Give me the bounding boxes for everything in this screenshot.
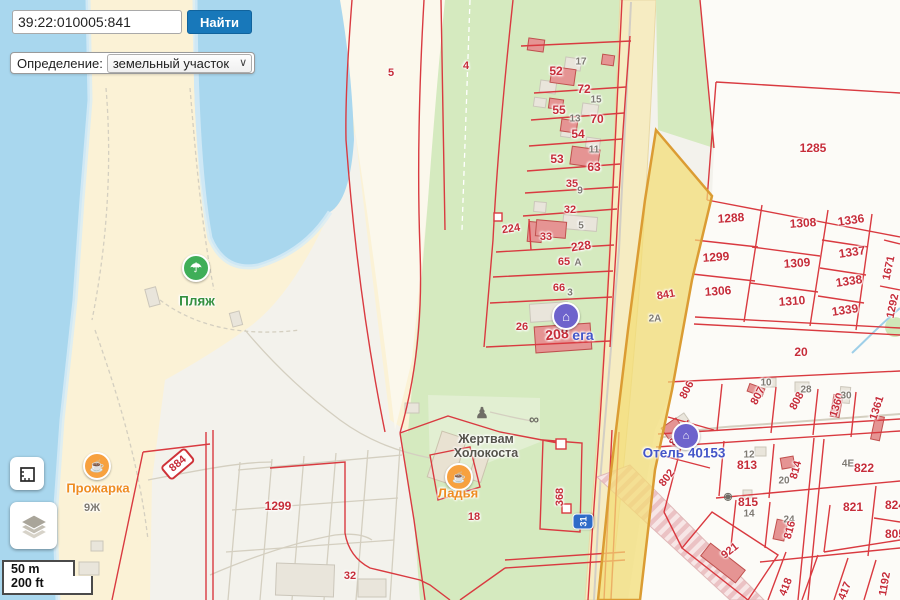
scale-imperial: 200 ft (2, 576, 93, 595)
filter-label: Определение: (17, 56, 103, 71)
ruler-icon (17, 464, 37, 484)
layers-button[interactable] (10, 502, 57, 549)
measure-ruler-button[interactable] (10, 457, 44, 490)
search-button[interactable]: Найти (187, 10, 252, 34)
chevron-down-icon: ∨ (239, 58, 247, 69)
terrain (0, 0, 900, 600)
road-shield: 31 (573, 514, 594, 530)
cadastral-map-app: 5452177255157013545311633593222433522865… (0, 0, 900, 600)
map-canvas[interactable] (0, 0, 900, 600)
filter-panel: Определение: земельный участок ∨ (10, 52, 255, 74)
search-panel: Найти (12, 10, 252, 34)
layers-icon (17, 509, 51, 543)
object-type-select[interactable]: земельный участок ∨ (107, 54, 252, 73)
road-shield-number: 31 (578, 517, 588, 527)
object-type-selected: земельный участок (113, 56, 229, 71)
search-input[interactable] (12, 10, 182, 34)
